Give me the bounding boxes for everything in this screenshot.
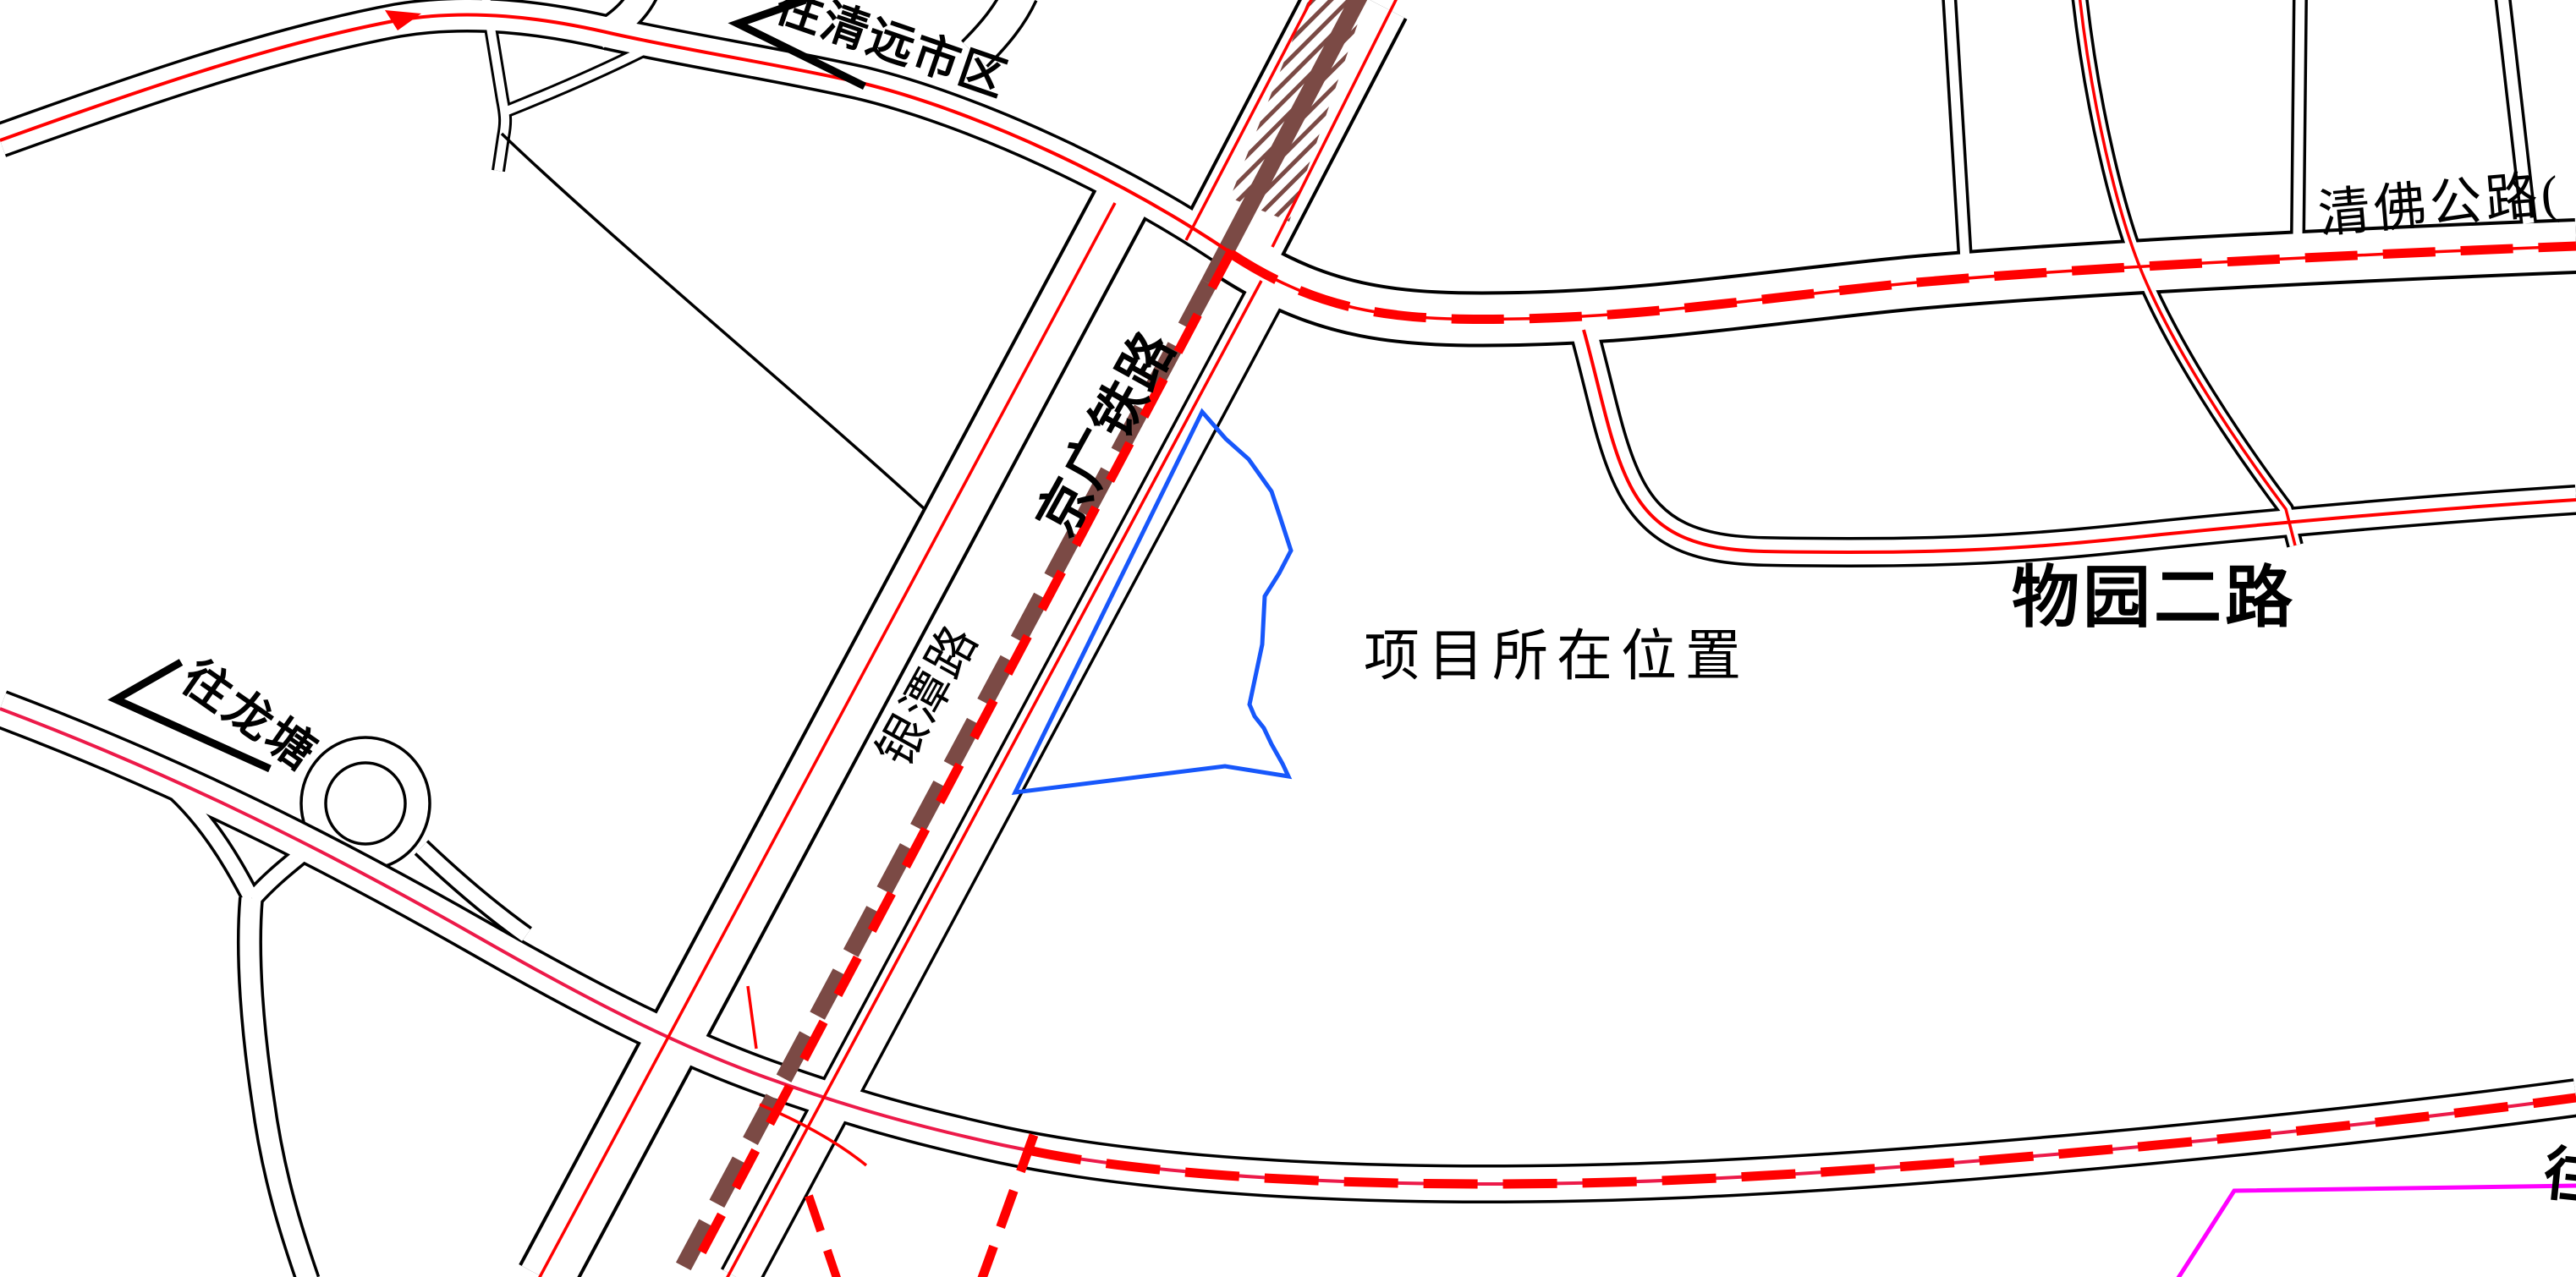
interchange-loop-inner	[326, 763, 405, 844]
planned-road-red-dashes-spur	[809, 1196, 838, 1277]
map-labels: 往清远市区 清佛公路( 京广铁路 银潭路 物园二路 项目所在位置 往龙塘 往	[173, 0, 2576, 1212]
label-wuyuan-er-road: 物园二路	[2012, 560, 2296, 635]
crossing-red-spur	[748, 986, 756, 1049]
qingfo-road-west-casing	[0, 14, 1242, 260]
longtang-highway-centerline	[0, 709, 2576, 1184]
label-project-location: 项目所在位置	[1364, 626, 1749, 688]
longtang-highway-casing	[0, 709, 2576, 1184]
location-map: 往清远市区 清佛公路( 京广铁路 银潭路 物园二路 项目所在位置 往龙塘 往	[0, 0, 2576, 1277]
map-canvas: 往清远市区 清佛公路( 京广铁路 银潭路 物园二路 项目所在位置 往龙塘 往	[0, 0, 2576, 1277]
magenta-boundary-line	[2177, 1186, 2576, 1277]
diagonal-local-road-line	[502, 134, 925, 510]
label-edge-partial: 往	[2540, 1140, 2576, 1212]
